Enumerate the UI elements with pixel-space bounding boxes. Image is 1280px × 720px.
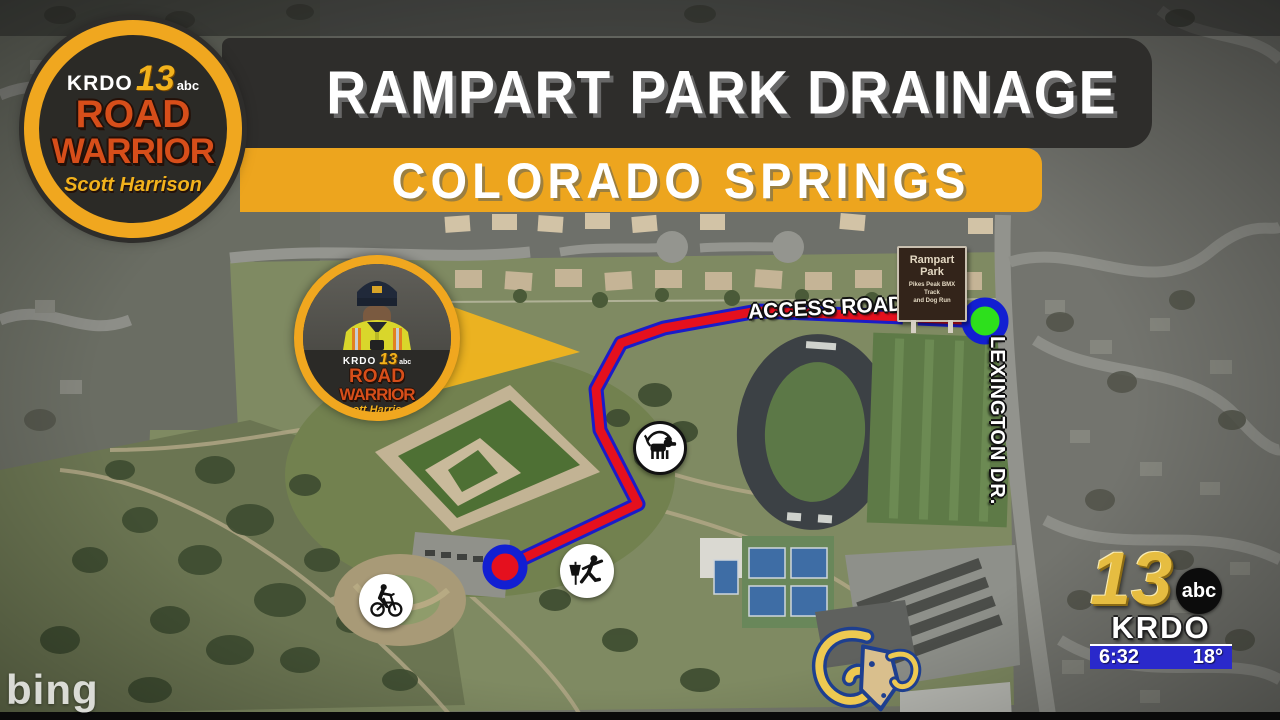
reporter-photo (303, 264, 451, 350)
bmx-bike-icon (363, 578, 409, 624)
show-title-road: ROAD (349, 368, 405, 386)
sign-sub-line1: Pikes Peak BMX (899, 282, 965, 290)
location-subtitle: COLORADO SPRINGS (392, 151, 971, 209)
network-name: abc (177, 79, 199, 92)
current-time: 6:32 (1099, 646, 1139, 669)
reporter-photo-badge: KRDO13abc ROAD WARRIOR Scott Harrison (294, 255, 460, 421)
station-bug: 13 abc KRDO 6:32 18° (1088, 548, 1238, 670)
station-id: KRDO13abc (67, 61, 199, 96)
ram-mascot-logo (806, 620, 924, 720)
show-title-warrior: WARRIOR (52, 134, 214, 169)
dog-walk-poi (633, 421, 687, 475)
host-name: Scott Harrison (64, 174, 202, 197)
bmx-bike-poi (359, 574, 413, 628)
story-title: RAMPART PARK DRAINAGE (326, 57, 1117, 128)
sign-sub-line3: and Dog Run (899, 298, 965, 306)
lexington-dr-label: LEXINGTON DR. (985, 336, 1008, 505)
broadcast-map-graphic: KRDO13abc ROAD WARRIOR Scott Harrison CO… (0, 0, 1280, 720)
current-temperature: 18° (1193, 646, 1223, 669)
show-logo-badge: KRDO13abc ROAD WARRIOR Scott Harrison (24, 20, 242, 238)
sign-title-line2: Park (899, 267, 965, 279)
sign-pole (911, 320, 916, 333)
time-temp-bar: 6:32 18° (1090, 644, 1232, 669)
station-call-letters: KRDO (67, 73, 133, 94)
dog-walk-icon (638, 426, 682, 470)
sign-title-line1: Rampart (899, 255, 965, 267)
sign-sub-line2: Track (899, 290, 965, 298)
network-name: abc (399, 359, 411, 366)
bug-network-circle: abc (1176, 568, 1222, 614)
bug-call-letters: KRDO (1088, 610, 1234, 646)
sign-pole (948, 320, 953, 333)
bottom-bar (0, 712, 1280, 720)
channel-number: 13 (136, 61, 175, 96)
bing-attribution: bing (6, 666, 99, 714)
bug-channel-number: 13 (1090, 536, 1172, 621)
disc-golf-icon (564, 548, 610, 594)
disc-golf-poi (560, 544, 614, 598)
show-title-road: ROAD (76, 96, 191, 133)
host-name: Scott Harrison (339, 405, 415, 416)
show-title-warrior: WARRIOR (339, 386, 414, 403)
reporter-illustration (317, 264, 437, 350)
rampart-park-sign: Rampart Park Pikes Peak BMX Track and Do… (897, 246, 967, 322)
title-bar: RAMPART PARK DRAINAGE (222, 38, 1152, 148)
subtitle-bar: COLORADO SPRINGS (240, 148, 1042, 212)
top-dim (0, 0, 1280, 36)
